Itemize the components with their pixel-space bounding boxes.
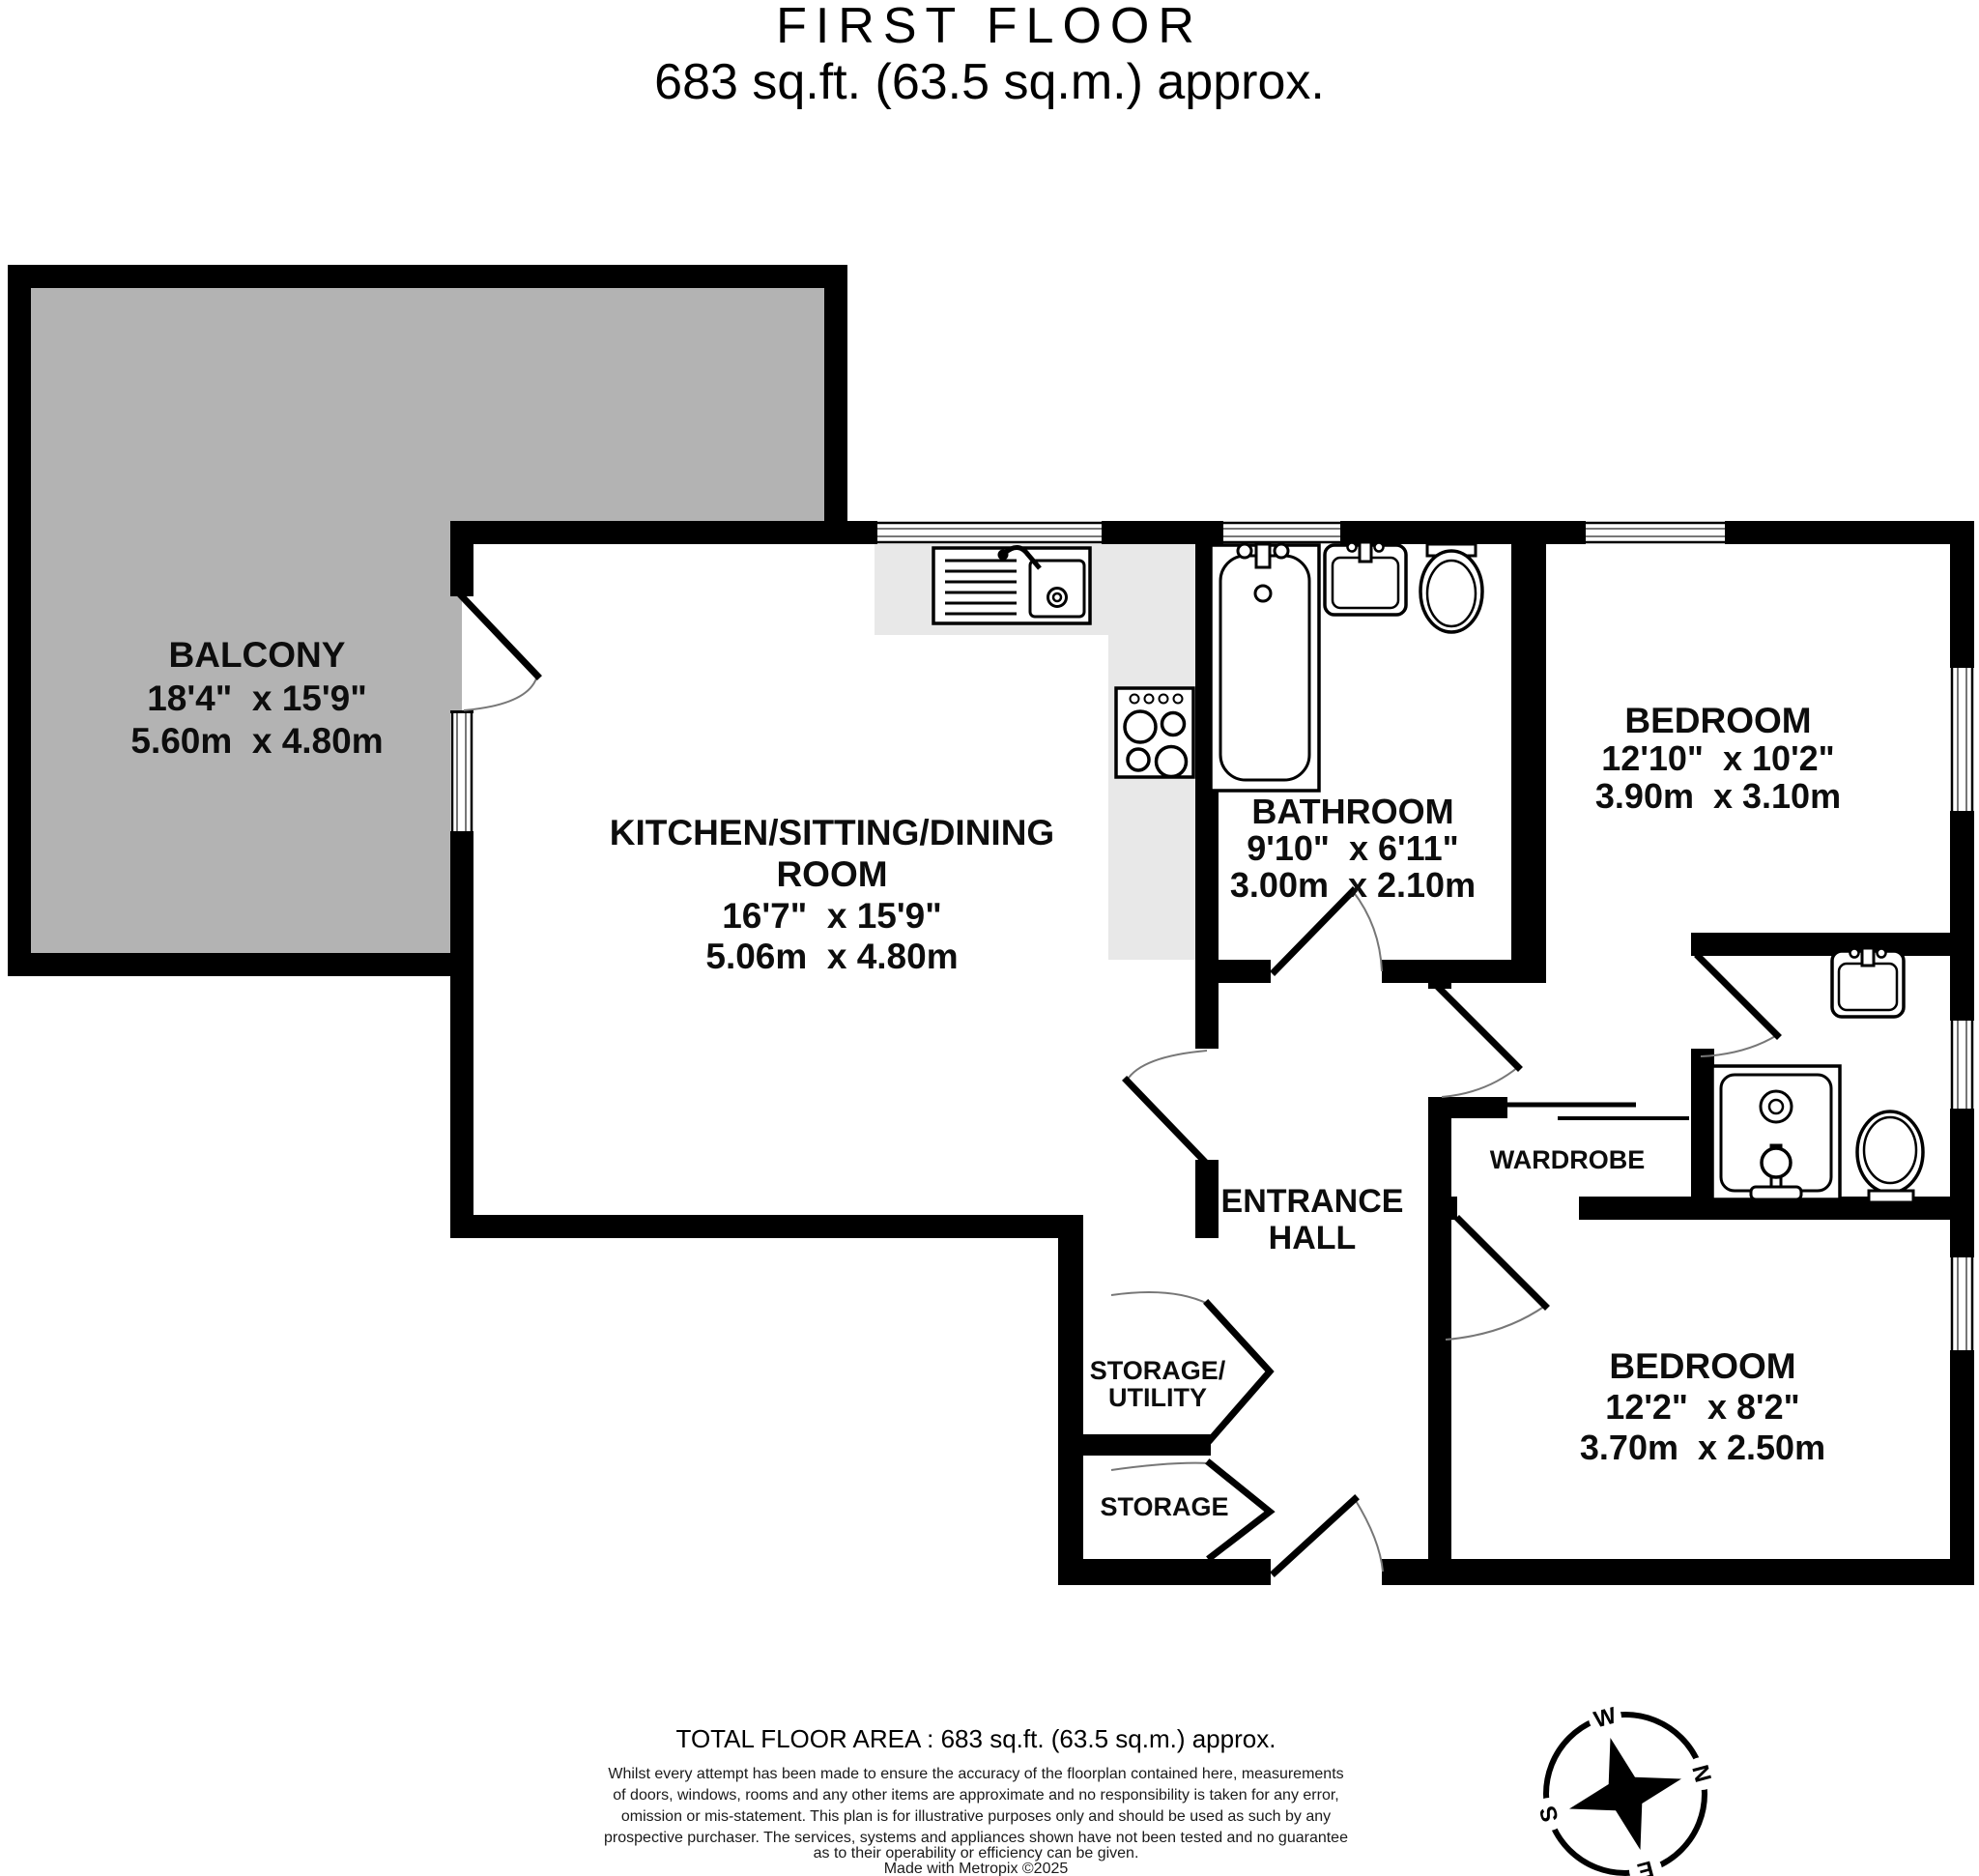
wall-storage-left <box>1058 1215 1083 1559</box>
wall-bottom-west <box>1058 1559 1271 1585</box>
wall-balcony-left <box>8 265 31 976</box>
wall-kitchen-right-jamb <box>1195 1160 1219 1238</box>
entrance-hall-line1: ENTRANCE <box>1221 1183 1404 1220</box>
wall-balcony-bottom <box>8 953 473 976</box>
floorplan-page: FIRST FLOOR 683 sq.ft. (63.5 sq.m.) appr… <box>0 0 1979 1876</box>
title-floor: FIRST FLOOR <box>776 0 1203 54</box>
bathroom-name: BATHROOM <box>1251 792 1453 831</box>
bathroom-fixtures <box>1211 542 1482 791</box>
balcony-name: BALCONY <box>169 635 346 675</box>
title-area: 683 sq.ft. (63.5 sq.m.) approx. <box>654 54 1325 110</box>
balcony-dims-imperial: 18'4" x 15'9" <box>147 678 367 718</box>
wardrobe-name: WARDROBE <box>1490 1145 1646 1174</box>
storage-name: STORAGE <box>1100 1492 1228 1521</box>
door-corridor <box>1440 989 1518 1097</box>
wall-storage-divider <box>1083 1434 1211 1456</box>
window-bathroom <box>1220 521 1343 544</box>
wall-bottom-east <box>1382 1559 1974 1585</box>
storage-utility-line1: STORAGE/ <box>1090 1356 1226 1385</box>
door-bedroom2 <box>1446 1220 1545 1340</box>
door-kitchen <box>1127 1051 1207 1160</box>
label-wardrobe: WARDROBE <box>1490 1145 1646 1174</box>
balcony-floor <box>19 276 836 965</box>
wall-bedroom2-top-jamb <box>1428 1197 1457 1220</box>
bedroom2-name: BEDROOM <box>1609 1346 1795 1386</box>
label-bedroom1: BEDROOM 12'10" x 10'2" 3.90m x 3.10m <box>1595 701 1841 816</box>
label-bathroom: BATHROOM 9'10" x 6'11" 3.00m x 2.10m <box>1230 792 1476 905</box>
wall-balcony-right <box>824 265 847 544</box>
bathroom-toilet-icon <box>1420 544 1482 632</box>
wall-kitchen-left <box>450 834 473 1238</box>
door-ensuite <box>1699 957 1777 1056</box>
bathroom-dims-metric: 3.00m x 2.10m <box>1230 865 1476 905</box>
label-kitchen: KITCHEN/SITTING/DINING ROOM 16'7" x 15'9… <box>610 813 1054 976</box>
window-bedroom1-right <box>1950 665 1974 814</box>
plan-title: FIRST FLOOR 683 sq.ft. (63.5 sq.m.) appr… <box>654 0 1325 110</box>
bedroom1-name: BEDROOM <box>1624 701 1811 740</box>
door-balcony <box>462 596 537 710</box>
hob-icon <box>1116 688 1193 777</box>
disclaimer-line-1: Whilst every attempt has been made to en… <box>608 1766 1343 1782</box>
window-bedroom1-top <box>1583 521 1728 544</box>
label-balcony: BALCONY 18'4" x 15'9" 5.60m x 4.80m <box>130 635 383 761</box>
shower-icon <box>1712 1066 1840 1199</box>
floorplan-image: FIRST FLOOR 683 sq.ft. (63.5 sq.m.) appr… <box>0 0 1979 1876</box>
window-kitchen-balcony <box>450 710 473 834</box>
window-bedroom2 <box>1950 1255 1974 1353</box>
label-storage: STORAGE <box>1100 1492 1228 1521</box>
storage-utility-line2: UTILITY <box>1108 1383 1207 1412</box>
wall-wardrobe-top <box>1448 1097 1507 1118</box>
sink-unit-icon <box>933 547 1090 623</box>
wardrobe-rails <box>1500 1105 1689 1118</box>
total-floor-area: TOTAL FLOOR AREA : 683 sq.ft. (63.5 sq.m… <box>676 1724 1276 1753</box>
wall-kitchen-bottom <box>450 1215 1083 1238</box>
wall-kitchen-left-jamb <box>450 521 473 596</box>
kitchen-dims-metric: 5.06m x 4.80m <box>705 937 958 976</box>
bath-icon <box>1211 544 1319 791</box>
footer: TOTAL FLOOR AREA : 683 sq.ft. (63.5 sq.m… <box>604 1724 1348 1876</box>
metropix-credit: Made with Metropix ©2025 <box>884 1861 1069 1876</box>
wall-hall-right <box>1428 1097 1451 1559</box>
bedroom1-dims-imperial: 12'10" x 10'2" <box>1601 738 1834 778</box>
bathroom-dims-imperial: 9'10" x 6'11" <box>1247 828 1458 868</box>
kitchen-dims-imperial: 16'7" x 15'9" <box>722 896 942 936</box>
kitchen-name-line2: ROOM <box>776 854 887 894</box>
door-entrance <box>1275 1499 1383 1573</box>
wall-bedroom1-bottom <box>1691 933 1950 956</box>
bedroom1-dims-metric: 3.90m x 3.10m <box>1595 776 1841 816</box>
balcony-dims-metric: 5.60m x 4.80m <box>130 721 383 761</box>
disclaimer-line-4: prospective purchaser. The services, sys… <box>604 1830 1348 1846</box>
bedroom2-dims-metric: 3.70m x 2.50m <box>1580 1428 1825 1467</box>
ensuite-toilet-icon <box>1857 1111 1923 1202</box>
kitchen-name-line1: KITCHEN/SITTING/DINING <box>610 813 1054 852</box>
entrance-hall-line2: HALL <box>1269 1220 1357 1256</box>
disclaimer-line-5: as to their operability or efficiency ca… <box>814 1845 1139 1862</box>
window-ensuite <box>1950 1018 1974 1111</box>
label-entrance-hall: ENTRANCE HALL <box>1221 1183 1404 1256</box>
window-kitchen <box>875 521 1104 544</box>
ensuite-basin-icon <box>1832 948 1904 1017</box>
bathroom-basin-icon <box>1325 542 1406 615</box>
label-bedroom2: BEDROOM 12'2" x 8'2" 3.70m x 2.50m <box>1580 1346 1825 1467</box>
disclaimer-line-3: omission or mis-statement. This plan is … <box>621 1808 1331 1825</box>
bedroom2-dims-imperial: 12'2" x 8'2" <box>1605 1387 1799 1427</box>
wall-bathroom-bedroom-divider <box>1511 521 1546 983</box>
label-storage-utility: STORAGE/ UTILITY <box>1090 1356 1226 1412</box>
wall-bathroom-bottom-west <box>1195 960 1271 983</box>
wall-balcony-top <box>8 265 847 288</box>
disclaimer-line-2: of doors, windows, rooms and any other i… <box>613 1787 1338 1804</box>
compass-icon: W N E S <box>1533 1701 1718 1876</box>
